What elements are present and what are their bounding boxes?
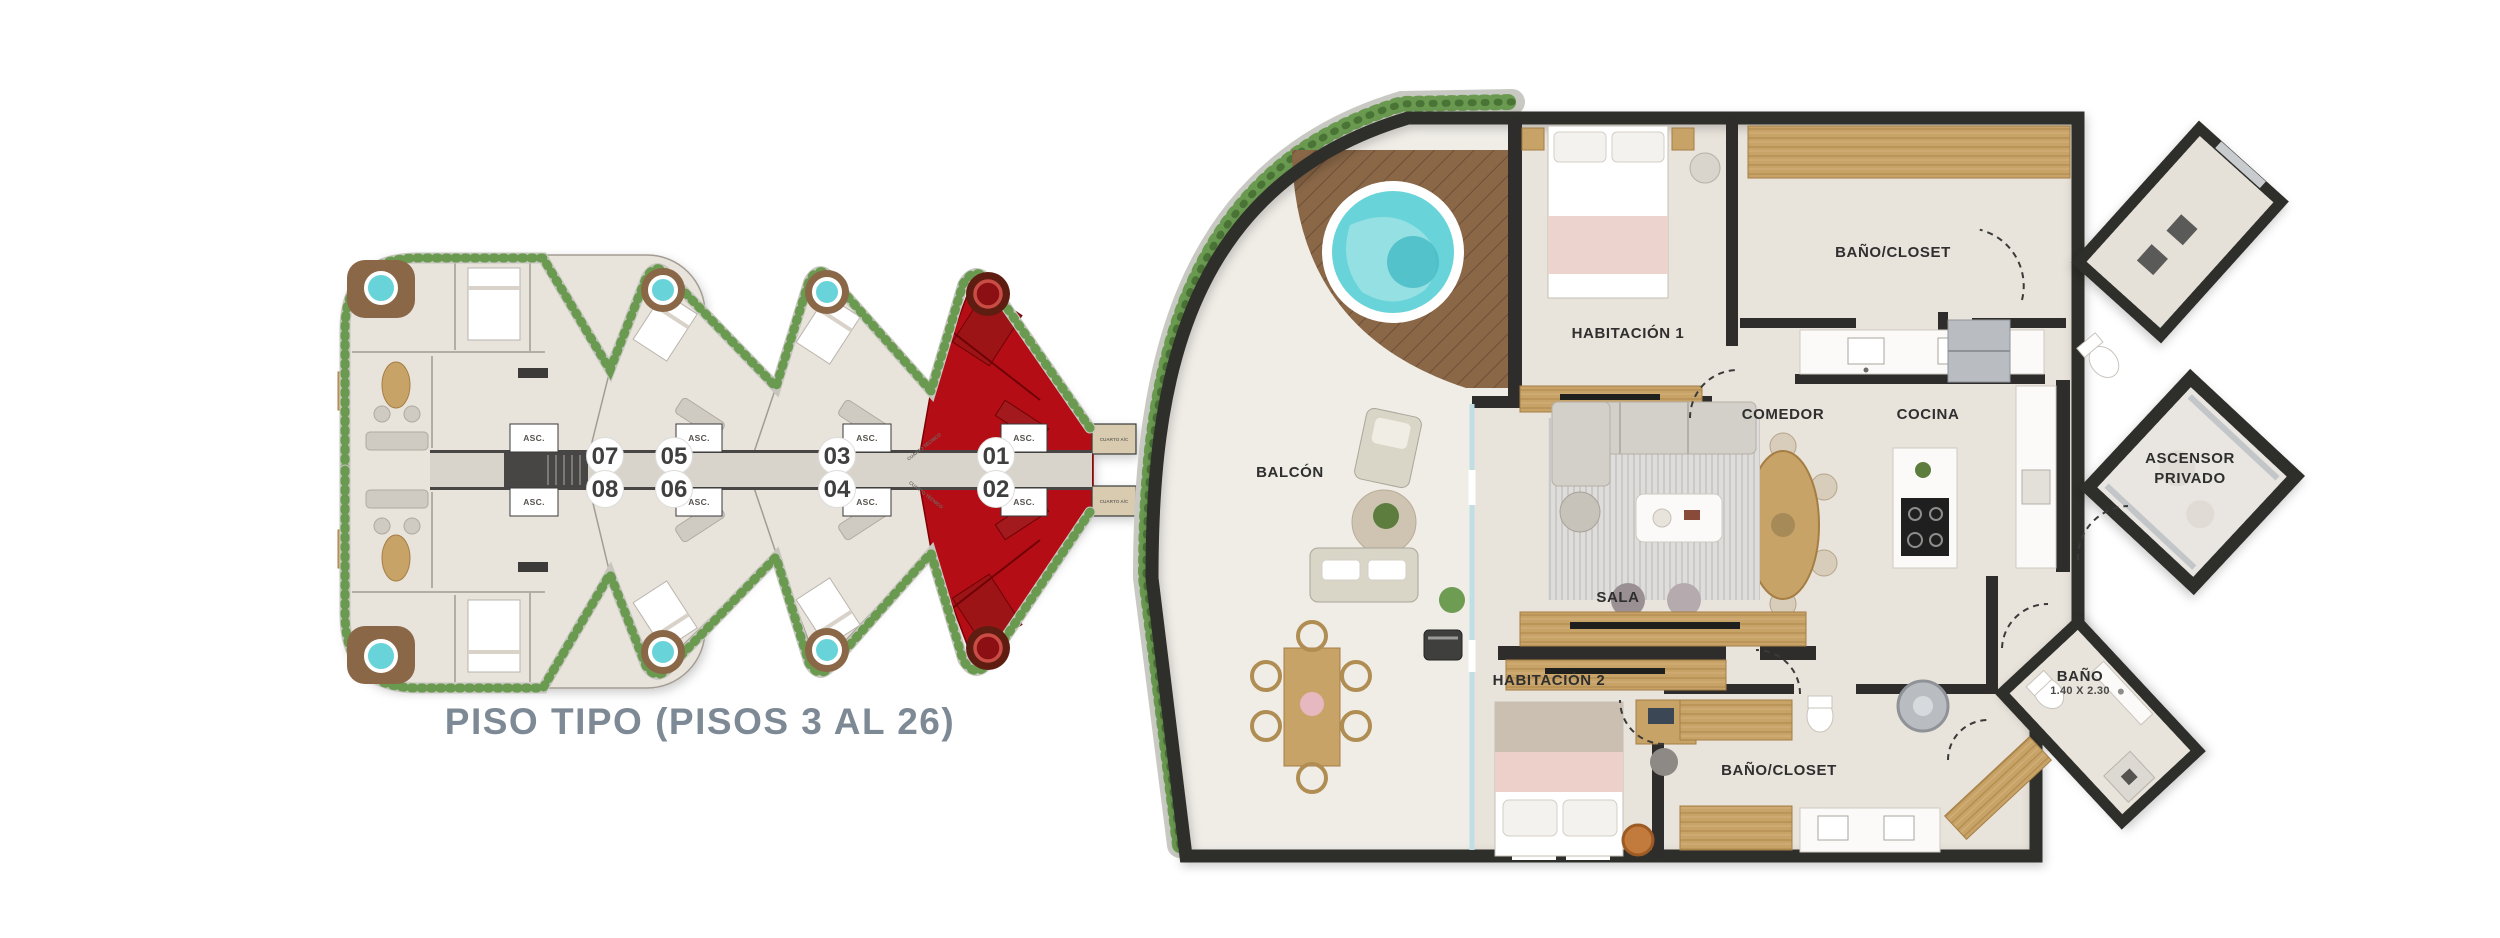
bed-icon — [468, 268, 520, 340]
pool-icon — [650, 277, 676, 303]
unit-badge-01: 01 — [983, 443, 1010, 470]
sink-icon — [1884, 816, 1914, 840]
closet-icon — [1680, 700, 1792, 740]
centerpiece — [1771, 513, 1795, 537]
armchair-icon — [1690, 153, 1720, 183]
closet-icon — [1748, 126, 2070, 178]
asc-label: ASC. — [856, 433, 878, 443]
asc-label: ASC. — [1013, 497, 1035, 507]
blanket — [1548, 216, 1668, 274]
pool-icon — [366, 641, 396, 671]
overview-plan: ASC. ASC. ASC. ASC. ASC. ASC. ASC. ASC. … — [338, 255, 1136, 742]
unit-badge-03: 03 — [824, 443, 851, 470]
closet-icon — [1680, 806, 1792, 850]
sink-icon — [1848, 338, 1884, 364]
blanket-fold — [1495, 752, 1623, 792]
cuarto-ac-label: CUARTO A/C — [1100, 499, 1129, 504]
asc-label: ASC. — [688, 497, 710, 507]
asc-label: ASC. — [523, 433, 545, 443]
pool-icon-highlighted — [975, 281, 1001, 307]
stair-core — [504, 452, 588, 488]
room-label-ascensor-line2: PRIVADO — [2154, 470, 2225, 487]
plan-title: PISO TIPO (PISOS 3 AL 26) — [445, 701, 955, 742]
sink-icon — [1818, 816, 1848, 840]
unit-badge-07: 07 — [592, 443, 619, 470]
sofa-icon — [366, 490, 428, 508]
room-label-balcon: BALCÓN — [1256, 463, 1324, 481]
stove-icon — [1901, 498, 1949, 556]
room-label-habitacion-2: HABITACIÓN 2 — [1493, 671, 1606, 689]
unit-badge-04: 04 — [824, 476, 851, 503]
plant-icon — [1915, 462, 1931, 478]
bbq-grill-icon — [1424, 630, 1462, 660]
tv-icon — [1570, 622, 1740, 629]
armchair-icon — [1560, 492, 1600, 532]
room-label-sala: SALA — [1596, 589, 1639, 606]
asc-label: ASC. — [1013, 433, 1035, 443]
flower-centerpiece — [1300, 692, 1324, 716]
kitchen-counter-icon — [518, 368, 548, 378]
unit-badge-08: 08 — [592, 476, 619, 503]
plant-icon — [1373, 503, 1399, 529]
room-label-bano-closet-bottom: BAÑO/CLOSET — [1721, 761, 1837, 779]
unit-badge-02: 02 — [983, 476, 1010, 503]
room-label-bano-dimensions: 1.40 X 2.30 — [2050, 685, 2110, 697]
pool-icon — [814, 279, 840, 305]
kitchen-counter-icon — [518, 562, 548, 572]
pool-icon — [366, 273, 396, 303]
unit-badge-06: 06 — [661, 476, 688, 503]
asc-label: ASC. — [523, 497, 545, 507]
nightstand-icon — [1522, 128, 1544, 150]
room-label-ascensor-line1: ASCENSOR — [2145, 450, 2235, 467]
pool-icon — [814, 637, 840, 663]
laptop-icon — [1648, 708, 1674, 724]
plant-icon — [1439, 587, 1465, 613]
room-label-habitacion-1: HABITACIÓN 1 — [1572, 324, 1685, 342]
kitchen-sink — [2022, 470, 2050, 504]
room-label-bano-closet-top: BAÑO/CLOSET — [1835, 243, 1951, 261]
entry-foyer — [2079, 125, 2285, 336]
detail-plan: BALCÓN HABITACIÓN 1 BAÑO/CLOSET COMEDOR … — [1146, 102, 2296, 860]
unit-badge-05: 05 — [661, 443, 688, 470]
pillow — [1563, 800, 1617, 836]
room-label-bano: BAÑO — [2057, 667, 2104, 685]
pouf-icon — [1623, 825, 1653, 855]
blanket — [1495, 702, 1623, 758]
bed-icon — [468, 600, 520, 672]
nightstand-icon — [1672, 128, 1694, 150]
asc-label: ASC. — [688, 433, 710, 443]
floorplan-sheet: ASC. ASC. ASC. ASC. ASC. ASC. ASC. ASC. … — [0, 0, 2500, 938]
pillow — [1503, 800, 1557, 836]
dining-table-icon — [382, 535, 410, 581]
chaise — [1552, 402, 1610, 486]
dining-table-icon — [382, 362, 410, 408]
asc-label: ASC. — [856, 497, 878, 507]
room-label-comedor: COMEDOR — [1742, 406, 1825, 423]
sofa-icon — [366, 432, 428, 450]
room-label-cocina: COCINA — [1897, 406, 1960, 423]
desk-chair-icon — [1650, 748, 1678, 776]
pool-icon-highlighted — [975, 635, 1001, 661]
coffee-table-icon — [1636, 494, 1722, 542]
cuarto-ac-label: CUARTO A/C — [1100, 437, 1129, 442]
pool-icon — [650, 639, 676, 665]
